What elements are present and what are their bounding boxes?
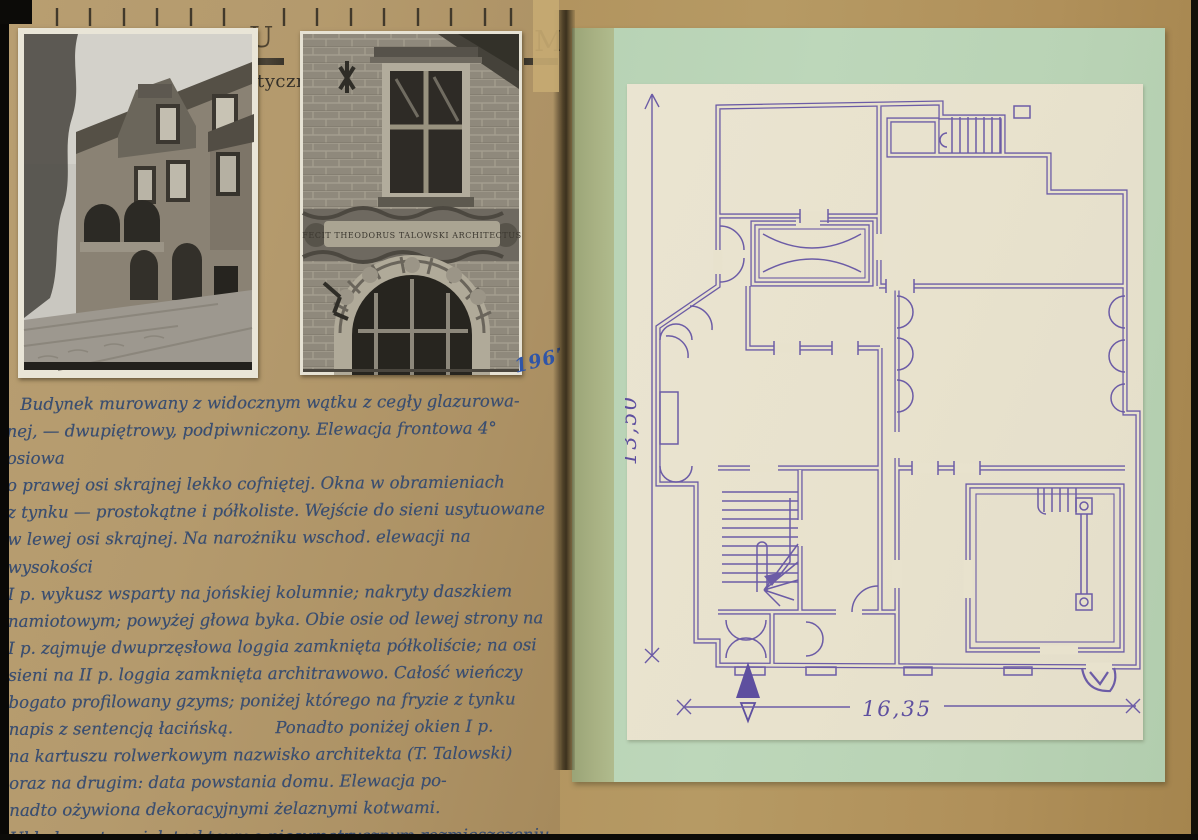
dimension-label-vertical: 13,50	[625, 395, 641, 465]
handwritten-description: Budynek murowany z widocznym wątku z ceg…	[6, 387, 561, 840]
dimension-label-horizontal: 16,35	[862, 697, 932, 721]
handwriting-line: nadto ożywiona dekoracyjnymi żelaznymi k…	[9, 793, 561, 824]
handwriting-line: nej, — dwupiętrowy, podpiwniczony. Elewa…	[6, 414, 558, 472]
scan-edge	[1191, 0, 1198, 840]
archival-card-scan: U M tyczn	[0, 0, 1198, 840]
handwriting-line: z tynku — prostokątne i półkoliste. Wejś…	[7, 495, 559, 526]
binding-seam-shadow	[553, 10, 575, 770]
handwriting-line: I p. zajmuje dwuprzęsłowa loggia zamknię…	[8, 631, 560, 662]
handwriting-line: napis z sentencją łacińską. Ponadto poni…	[9, 712, 561, 743]
photo-window-plaque-detail: FECIT THEODORUS TALOWSKI ARCHITECTUS	[300, 31, 522, 375]
handwriting-line: w lewej osi skrajnej. Na narożniku wscho…	[7, 523, 559, 581]
photo-building-facade	[18, 28, 258, 378]
plaque-inscription: FECIT THEODORUS TALOWSKI ARCHITECTUS	[302, 231, 521, 240]
handwriting-line: o prawej osi skrajnej lekko cofniętej. O…	[7, 468, 559, 499]
handwriting-line: Budynek murowany z widocznym wątku z ceg…	[6, 387, 558, 418]
tape-remnant	[533, 0, 559, 92]
handwriting-line: namiotowym; powyżej głowa byka. Obie osi…	[8, 604, 560, 635]
green-sheet-folded-edge	[572, 28, 614, 782]
scan-edge	[0, 0, 32, 24]
handwriting-line: I p. wykusz wsparty na jońskiej kolumnie…	[8, 577, 560, 608]
handwriting-line: bogato profilowany gzyms; poniżej któreg…	[8, 685, 560, 716]
handwriting-line: oraz na drugim: data powstania domu. Ele…	[9, 766, 561, 797]
entrance-arrow-marker	[736, 662, 760, 721]
scan-edge	[0, 0, 9, 840]
floor-plan-drawing: 13,50 16,35	[625, 84, 1145, 744]
scan-edge	[0, 834, 1198, 840]
handwriting-line: na kartuszu rolwerkowym nazwisko archite…	[9, 739, 561, 770]
ruler-tick-marks	[40, 6, 556, 30]
handwriting-line: sieni na II p. loggia zamknięta architra…	[8, 658, 560, 689]
